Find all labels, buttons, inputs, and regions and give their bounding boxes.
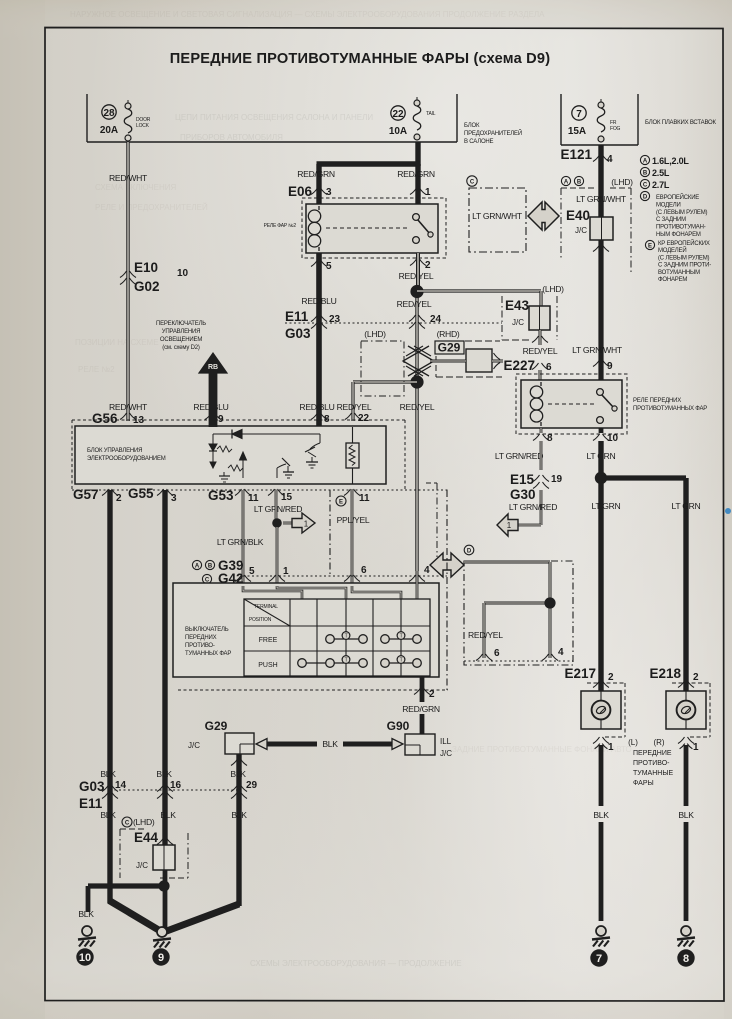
svg-text:2.7L: 2.7L: [652, 180, 670, 190]
svg-text:8: 8: [547, 433, 553, 444]
svg-text:ОСВЕЩЕНИЕМ: ОСВЕЩЕНИЕМ: [160, 337, 202, 343]
svg-text:6: 6: [361, 565, 367, 576]
svg-text:J/C: J/C: [136, 861, 148, 870]
svg-text:E227: E227: [503, 358, 535, 373]
svg-text:20A: 20A: [100, 125, 118, 136]
svg-text:E15: E15: [510, 472, 535, 487]
svg-text:ВЫКЛЮЧАТЕЛЬ: ВЫКЛЮЧАТЕЛЬ: [185, 627, 229, 633]
svg-text:J/C: J/C: [188, 741, 200, 750]
svg-text:С ЗАДНИМ: С ЗАДНИМ: [656, 217, 686, 223]
svg-text:1.6L,2.0L: 1.6L,2.0L: [652, 156, 689, 166]
svg-text:BLK: BLK: [322, 739, 338, 749]
svg-text:1: 1: [425, 187, 431, 198]
svg-text:ЦЕПИ ПИТАНИЯ ОСВЕЩЕНИЯ САЛОНА: ЦЕПИ ПИТАНИЯ ОСВЕЩЕНИЯ САЛОНА И ПАНЕЛИ: [175, 113, 373, 122]
svg-text:PPL/YEL: PPL/YEL: [337, 515, 370, 525]
svg-text:15: 15: [281, 492, 293, 503]
svg-text:J/C: J/C: [575, 226, 587, 235]
svg-text:11: 11: [248, 493, 259, 504]
svg-text:ПРОТИВОТУМАННЫХ ФАР: ПРОТИВОТУМАННЫХ ФАР: [633, 406, 707, 412]
svg-text:ПРОТИВОТУМАН-: ПРОТИВОТУМАН-: [656, 225, 706, 231]
svg-text:E121: E121: [560, 147, 592, 162]
svg-text:RED/YEL: RED/YEL: [468, 630, 503, 640]
svg-text:3: 3: [326, 187, 332, 198]
svg-text:ФОНАРЕМ: ФОНАРЕМ: [658, 277, 687, 283]
svg-text:C: C: [125, 820, 130, 826]
svg-text:16: 16: [170, 780, 182, 791]
svg-text:1: 1: [507, 521, 512, 530]
svg-text:RED/BLU: RED/BLU: [301, 296, 336, 306]
svg-text:28: 28: [103, 108, 115, 119]
svg-text:LT GRN/RED: LT GRN/RED: [495, 451, 543, 461]
svg-text:G03: G03: [79, 779, 105, 794]
svg-text:A: A: [564, 179, 569, 185]
svg-text:T: T: [400, 634, 403, 640]
svg-text:E217: E217: [564, 666, 596, 681]
svg-text:BLK: BLK: [160, 810, 176, 820]
svg-text:(С ЛЕВЫМ РУЛЕМ): (С ЛЕВЫМ РУЛЕМ): [656, 210, 708, 216]
svg-text:G29: G29: [438, 341, 461, 355]
svg-text:(LHD): (LHD): [364, 329, 386, 339]
svg-text:(см. схему D2): (см. схему D2): [162, 345, 200, 351]
svg-text:ТУМАННЫЕ: ТУМАННЫЕ: [633, 770, 674, 777]
svg-text:LT GRN/WHT: LT GRN/WHT: [572, 345, 623, 355]
svg-text:RED/WHT: RED/WHT: [109, 173, 148, 183]
svg-text:29: 29: [246, 780, 258, 791]
svg-text:D: D: [643, 194, 648, 200]
svg-text:РЕЛЕ №2: РЕЛЕ №2: [78, 365, 115, 374]
svg-text:(С ЛЕВЫМ РУЛЕМ): (С ЛЕВЫМ РУЛЕМ): [658, 255, 710, 261]
svg-text:22: 22: [358, 413, 370, 424]
svg-text:BLK: BLK: [231, 810, 247, 820]
svg-text:G30: G30: [510, 487, 536, 502]
svg-text:J/C: J/C: [512, 318, 524, 327]
svg-text:3: 3: [171, 493, 177, 504]
svg-text:RED/YEL: RED/YEL: [337, 402, 372, 412]
svg-text:ПОЗИЦИИ НА СХЕМЕ: ПОЗИЦИИ НА СХЕМЕ: [75, 338, 159, 347]
svg-text:RED/GRN: RED/GRN: [402, 704, 440, 714]
svg-text:2: 2: [116, 493, 122, 504]
svg-text:LT GRN: LT GRN: [672, 501, 701, 511]
svg-text:В САЛОНЕ: В САЛОНЕ: [464, 139, 494, 145]
svg-text:МОДЕЛЕЙ: МОДЕЛЕЙ: [658, 246, 686, 254]
svg-text:TERMINAL: TERMINAL: [254, 604, 278, 610]
svg-text:LT GRN/BLK: LT GRN/BLK: [217, 537, 264, 547]
svg-text:RED/GRN: RED/GRN: [297, 169, 335, 179]
svg-text:LT GRN: LT GRN: [592, 501, 621, 511]
svg-text:RB: RB: [208, 364, 218, 371]
svg-text:RED/YEL: RED/YEL: [523, 346, 558, 356]
svg-text:E11: E11: [285, 309, 309, 324]
svg-text:E44: E44: [134, 830, 159, 845]
svg-text:T: T: [345, 658, 348, 664]
svg-text:РЕЛЕ ПЕРЕДНИХ: РЕЛЕ ПЕРЕДНИХ: [633, 398, 681, 404]
svg-text:2.5L: 2.5L: [652, 168, 670, 178]
svg-text:5: 5: [249, 566, 255, 577]
svg-text:BLK: BLK: [230, 769, 246, 779]
svg-text:C: C: [643, 182, 648, 188]
svg-text:МОДЕЛИ: МОДЕЛИ: [656, 202, 681, 208]
svg-text:БЛОК УПРАВЛЕНИЯ: БЛОК УПРАВЛЕНИЯ: [87, 448, 142, 454]
svg-text:RED/YEL: RED/YEL: [397, 299, 432, 309]
svg-text:9: 9: [158, 952, 164, 964]
svg-text:B: B: [643, 170, 648, 176]
svg-text:14: 14: [115, 780, 127, 791]
svg-text:BLK: BLK: [593, 810, 609, 820]
svg-text:ПЕРЕДНИХ: ПЕРЕДНИХ: [185, 635, 217, 641]
svg-text:BLK: BLK: [156, 769, 172, 779]
svg-text:(RHD): (RHD): [437, 329, 460, 339]
svg-text:ЭЛЕКТРООБОРУДОВАНИЕМ: ЭЛЕКТРООБОРУДОВАНИЕМ: [87, 456, 166, 462]
svg-text:ПРЕДОХРАНИТЕЛЕЙ: ПРЕДОХРАНИТЕЛЕЙ: [464, 129, 522, 137]
svg-text:ФАРЫ: ФАРЫ: [633, 780, 654, 787]
svg-text:13: 13: [133, 415, 145, 426]
svg-text:22: 22: [392, 109, 404, 120]
svg-text:ПРИБОРОВ АВТОМОБИЛЯ: ПРИБОРОВ АВТОМОБИЛЯ: [180, 133, 283, 142]
svg-text:1: 1: [608, 742, 614, 753]
svg-text:2: 2: [425, 260, 431, 271]
svg-text:7: 7: [596, 953, 602, 965]
svg-text:6: 6: [494, 648, 500, 659]
svg-text:ПРОТИВО-: ПРОТИВО-: [633, 760, 670, 767]
svg-text:G56: G56: [92, 411, 118, 426]
svg-text:15A: 15A: [568, 126, 586, 137]
svg-text:ПЕРЕДНИЕ ПРОТИВОТУМАННЫЕ ФАРЫ: ПЕРЕДНИЕ ПРОТИВОТУМАННЫЕ ФАРЫ (схема D9): [170, 51, 551, 67]
svg-text:G29: G29: [205, 719, 228, 733]
svg-text:ПРОТИВО-: ПРОТИВО-: [185, 643, 215, 649]
svg-text:8: 8: [683, 953, 689, 965]
svg-text:E: E: [339, 499, 343, 505]
svg-text:РЕЛЕ ФАР №2: РЕЛЕ ФАР №2: [264, 223, 297, 229]
svg-text:LT GRN/RED: LT GRN/RED: [254, 504, 302, 514]
svg-text:G03: G03: [285, 326, 311, 341]
svg-text:СХЕМА ВКЛЮЧЕНИЯ: СХЕМА ВКЛЮЧЕНИЯ: [95, 183, 176, 192]
svg-text:24: 24: [430, 314, 442, 325]
svg-text:E: E: [648, 243, 652, 249]
svg-text:4: 4: [558, 647, 564, 658]
svg-text:RED/YEL: RED/YEL: [400, 402, 435, 412]
svg-text:КР ЕВРОПЕЙСКИХ: КР ЕВРОПЕЙСКИХ: [658, 239, 710, 247]
svg-text:PUSH: PUSH: [258, 662, 277, 669]
svg-text:E218: E218: [649, 666, 681, 681]
svg-text:БЛОК ПЛАВКИХ ВСТАВОК: БЛОК ПЛАВКИХ ВСТАВОК: [645, 120, 717, 126]
svg-text:BLK: BLK: [78, 909, 94, 919]
svg-text:LOCK: LOCK: [136, 123, 150, 129]
svg-text:4: 4: [424, 565, 430, 576]
svg-text:T: T: [400, 658, 403, 664]
svg-text:G90: G90: [387, 719, 410, 733]
svg-text:(L): (L): [628, 738, 638, 747]
svg-text:B: B: [577, 179, 582, 185]
svg-text:(LHD): (LHD): [542, 284, 564, 294]
svg-text:19: 19: [551, 474, 563, 485]
svg-text:ВОТУМАННЫМ: ВОТУМАННЫМ: [658, 270, 700, 276]
svg-text:J/C: J/C: [440, 749, 452, 758]
svg-text:(LHD): (LHD): [611, 177, 633, 187]
svg-text:6: 6: [546, 362, 552, 373]
svg-text:УПРАВЛЕНИЯ: УПРАВЛЕНИЯ: [162, 329, 201, 335]
svg-text:11: 11: [359, 493, 370, 504]
svg-text:BLK: BLK: [100, 810, 116, 820]
svg-text:ТУМАННЫХ ФАР: ТУМАННЫХ ФАР: [185, 651, 231, 657]
svg-text:ПЕРЕКЛЮЧАТЕЛЬ: ПЕРЕКЛЮЧАТЕЛЬ: [156, 321, 206, 327]
svg-text:1: 1: [304, 520, 309, 529]
svg-text:BLK: BLK: [678, 810, 694, 820]
svg-text:10: 10: [79, 952, 91, 964]
svg-text:5: 5: [326, 261, 332, 272]
svg-text:E11: E11: [79, 796, 103, 811]
svg-text:B: B: [208, 563, 213, 569]
svg-text:РЕЛЕ И ПРЕДОХРАНИТЕЛЕЙ: РЕЛЕ И ПРЕДОХРАНИТЕЛЕЙ: [95, 203, 208, 212]
svg-text:2: 2: [608, 672, 614, 683]
svg-text:1: 1: [693, 742, 699, 753]
svg-text:ЕВРОПЕЙСКИЕ: ЕВРОПЕЙСКИЕ: [656, 193, 699, 201]
svg-text:LT GRN/RED: LT GRN/RED: [509, 502, 557, 512]
svg-text:НЫМ ФОНАРЕМ: НЫМ ФОНАРЕМ: [656, 232, 701, 238]
svg-text:FREE: FREE: [259, 637, 278, 644]
svg-text:A: A: [195, 563, 200, 569]
svg-text:9: 9: [218, 414, 224, 425]
svg-text:9: 9: [607, 361, 613, 372]
svg-text:4: 4: [607, 154, 613, 165]
svg-text:E40: E40: [566, 208, 590, 223]
svg-text:RED/BLU: RED/BLU: [299, 402, 334, 412]
svg-text:FOG: FOG: [610, 126, 621, 132]
svg-text:LT GRN/WHT: LT GRN/WHT: [576, 194, 627, 204]
svg-text:ILL: ILL: [440, 737, 452, 746]
svg-text:D: D: [467, 548, 472, 554]
svg-text:RED/GRN: RED/GRN: [397, 169, 435, 179]
svg-text:E43: E43: [505, 298, 530, 313]
svg-text:POSITION: POSITION: [249, 617, 272, 623]
svg-text:(R): (R): [653, 738, 664, 747]
svg-text:(LHD): (LHD): [133, 817, 155, 827]
svg-text:С ЗАДНИМ ПРОТИ-: С ЗАДНИМ ПРОТИ-: [658, 263, 711, 269]
svg-text:LT GRN/WHT: LT GRN/WHT: [472, 211, 523, 221]
svg-text:БЛОК: БЛОК: [464, 123, 480, 129]
svg-text:8: 8: [324, 414, 330, 425]
svg-text:BLK: BLK: [100, 769, 116, 779]
svg-text:C: C: [470, 179, 475, 185]
svg-text:E10: E10: [134, 260, 158, 275]
svg-text:7: 7: [576, 109, 582, 120]
svg-text:T: T: [345, 634, 348, 640]
svg-text:G55: G55: [128, 486, 154, 501]
svg-text:G57: G57: [73, 487, 99, 502]
svg-text:A: A: [643, 158, 648, 164]
svg-text:G53: G53: [208, 488, 234, 503]
svg-text:2: 2: [429, 689, 435, 700]
svg-text:G02: G02: [134, 279, 160, 294]
svg-text:СХЕМЫ ЭЛЕКТРООБОРУДОВАНИЯ — ПР: СХЕМЫ ЭЛЕКТРООБОРУДОВАНИЯ — ПРОДОЛЖЕНИЕ: [250, 959, 462, 968]
svg-text:10: 10: [607, 433, 619, 444]
svg-text:10: 10: [177, 268, 189, 279]
svg-text:1: 1: [283, 566, 289, 577]
svg-text:E06: E06: [288, 184, 313, 199]
svg-text:23: 23: [329, 314, 341, 325]
svg-text:2: 2: [693, 672, 699, 683]
svg-text:10A: 10A: [389, 126, 407, 137]
svg-text:ПЕРЕДНИЕ: ПЕРЕДНИЕ: [633, 750, 672, 757]
svg-text:TAIL: TAIL: [426, 111, 436, 117]
